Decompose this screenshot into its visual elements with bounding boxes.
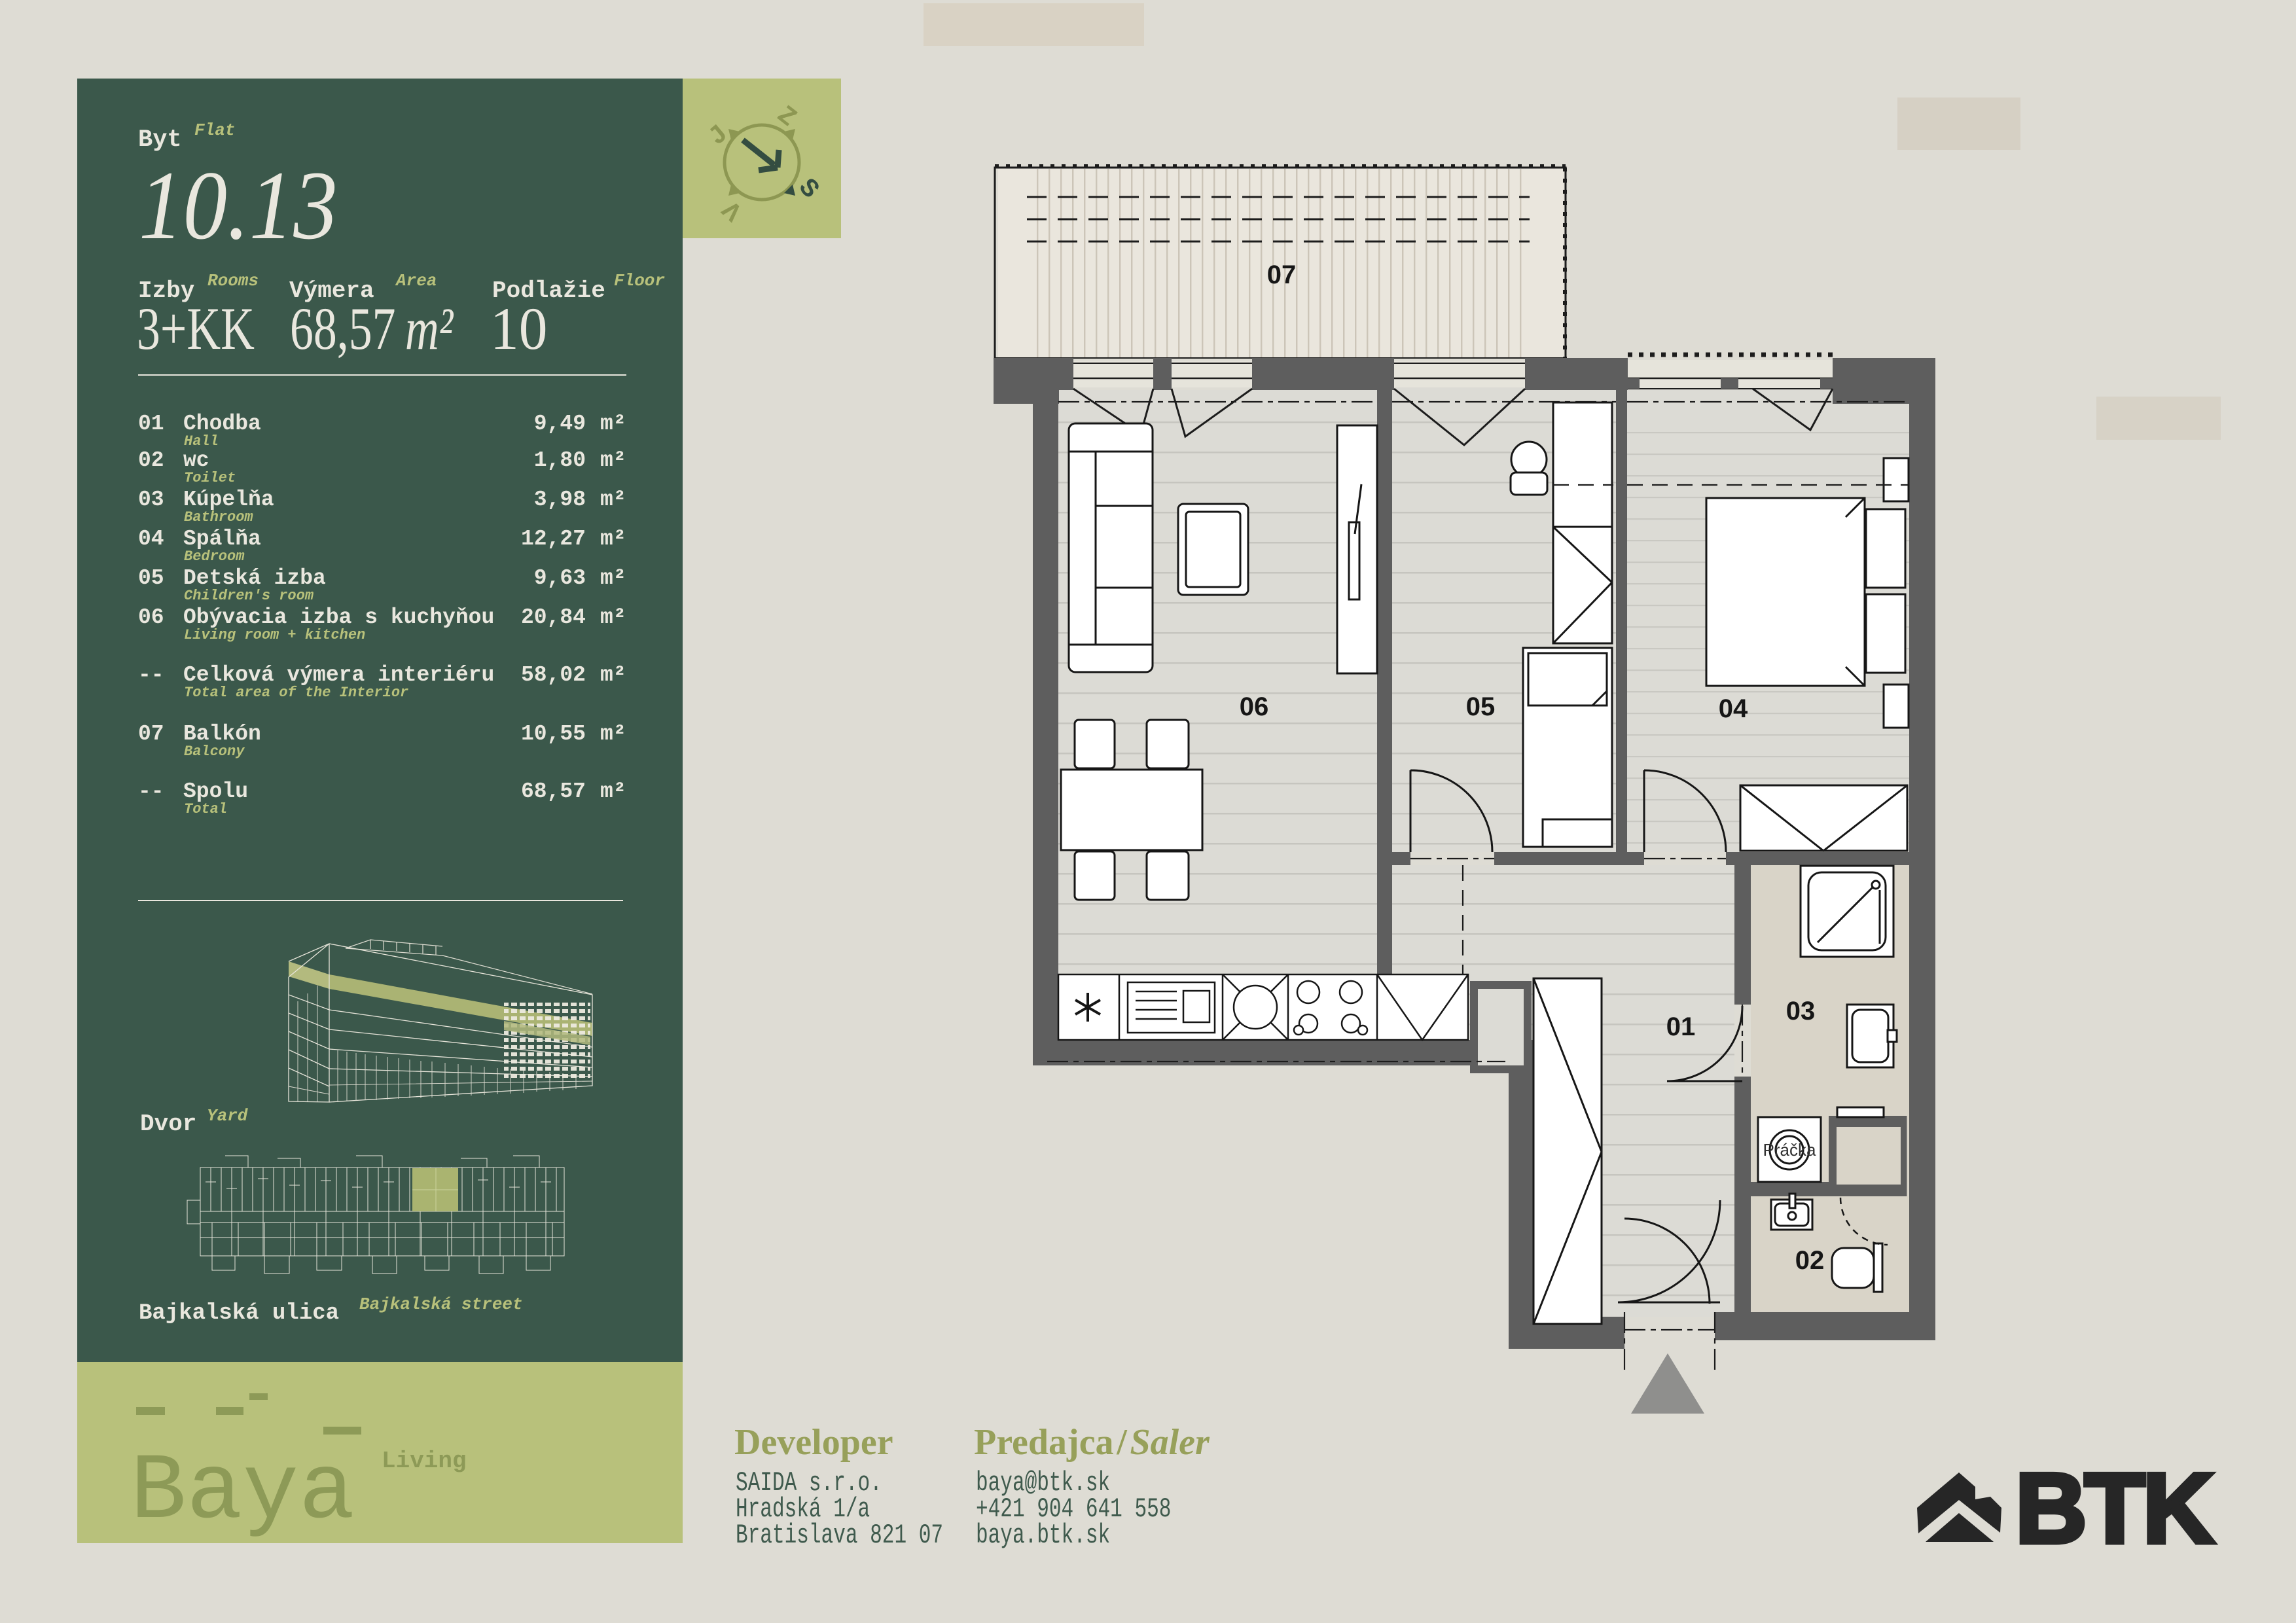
svg-text:02: 02	[1795, 1246, 1825, 1275]
svg-text:J: J	[704, 120, 734, 152]
svg-text:03: 03	[1786, 997, 1816, 1026]
svg-text:BTK: BTK	[2015, 1453, 2214, 1558]
svg-text:06: 06	[1240, 692, 1269, 721]
svg-text:07: 07	[1267, 260, 1297, 289]
svg-text:V: V	[718, 194, 749, 226]
svg-text:01: 01	[1666, 1012, 1696, 1041]
svg-text:04: 04	[1719, 694, 1748, 723]
svg-text:05: 05	[1466, 692, 1496, 721]
svg-text:Práčka: Práčka	[1763, 1140, 1816, 1160]
